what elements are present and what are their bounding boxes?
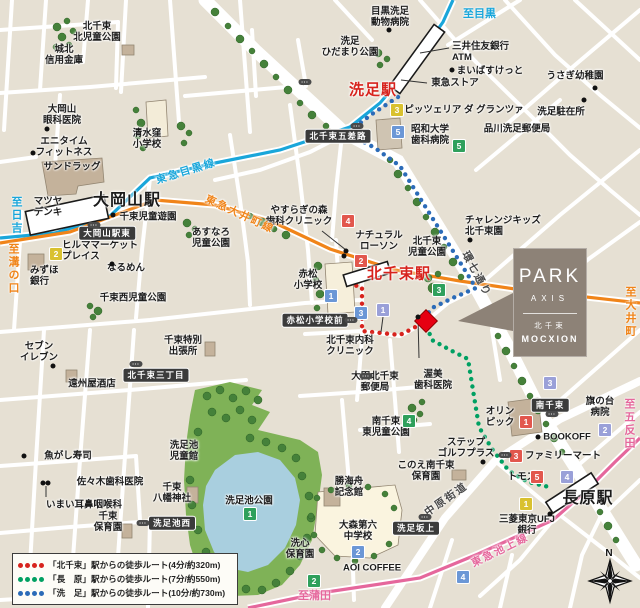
compass-north-label: N [605,548,612,559]
poi-label: ナチュラル ローソン [355,230,403,252]
poi-location-dot [31,151,36,156]
legend-route-label: 「長 原」駅からの徒歩ルート(7分/約550m) [48,573,220,585]
poi-label: オリン ピック [486,406,515,428]
poi-label: 洗足池公園 [225,495,273,506]
poi-location-dot [593,86,598,91]
poi-label: 魚がし寿司 [44,450,92,461]
legend-dot [32,591,37,596]
area-access-map: 北千束 北児童公園城北 信用金庫大岡山 眼科医院エニタイム フィットネスサンドラ… [0,0,640,608]
poi-label: BOOKOFF [543,431,591,442]
poi-location-dot [111,213,116,218]
numbered-poi-badge: 2 [598,423,612,437]
rail-road-name-label: 東急目黒線 [154,155,218,188]
direction-label: 至日吉 [8,196,24,235]
poi-label: チャレンジキッズ 北千束園 [465,215,541,237]
station-name-label: 大岡山駅 [93,186,161,210]
legend-dot [18,577,23,582]
legend-dot [32,563,37,568]
legend-dot [18,591,23,596]
poi-location-dot [582,98,587,103]
station-name-label: 長原駅 [562,484,613,508]
legend-dot [32,577,37,582]
numbered-poi-badge: 4 [341,214,355,228]
numbered-poi-badge: 5 [452,139,466,153]
poi-location-dot [387,28,392,33]
poi-label: 洗足 ひだまり公園 [322,36,379,58]
poi-label: 千束特別 出張所 [164,335,202,357]
bus-stop-icon: ••• [546,411,559,417]
bus-stop-icon: ••• [137,520,150,526]
poi-label: マツヤ デンキ [34,196,63,218]
numbered-poi-badge: 3 [390,103,404,117]
brand-location: 北千束 [513,320,587,331]
poi-location-dot [51,364,56,369]
poi-label: ヒルママーケット プレイス [62,240,138,262]
poi-label: まいばすけっと [457,65,524,76]
poi-label: 赤松 小学校 [294,269,323,291]
legend-row: 「北千束」駅からの徒歩ルート(4分/約320m) [18,558,232,572]
poi-label: ステップ ゴルフプラス [438,437,495,459]
poi-label: 品川洗足郵便局 [484,123,551,134]
legend-route-label: 「北千束」駅からの徒歩ルート(4分/約320m) [48,559,220,571]
poi-label: セブン イレブン [20,341,58,363]
poi-location-dot [342,254,347,259]
station-name-label: 北千束駅 [367,263,431,284]
numbered-poi-badge: 5 [391,125,405,139]
direction-label: 至大井町 [622,286,638,338]
brand-axis: AXIS [513,294,587,303]
bus-stop-name-badge: 洗足坂上 [393,522,439,535]
legend-row: 「長 原」駅からの徒歩ルート(7分/約550m) [18,572,232,586]
direction-label: 至蒲田 [298,587,331,603]
numbered-poi-badge: 3 [432,283,446,297]
legend-dot [39,591,44,596]
poi-label: あすなろ 児童公園 [192,227,230,249]
route-legend: 「北千束」駅からの徒歩ルート(4分/約320m)「長 原」駅からの徒歩ルート(7… [12,553,238,605]
direction-label: 至五反田 [621,398,637,450]
bus-stop-name-badge: 南千束 [532,399,569,412]
poi-label: 旗の台 病院 [586,396,615,418]
legend-dot [39,563,44,568]
poi-label: ファミリーマート [525,450,601,461]
bus-stop-icon: ••• [130,361,143,367]
poi-label: 渥美 歯科医院 [414,369,452,391]
rail-road-name-label: 東急大井町線 [203,191,277,236]
numbered-poi-badge: 1 [243,507,257,521]
poi-location-dot [46,481,51,486]
poi-label: 清水窪 小学校 [133,128,162,150]
brand-divider [523,313,577,314]
bus-stop-icon: ••• [345,317,358,323]
poi-label: 北千束 児童公園 [408,236,446,258]
legend-row: 「洗 足」駅からの徒歩ルート(10分/約730m) [18,586,232,600]
numbered-poi-badge: 1 [519,415,533,429]
legend-dot [18,563,23,568]
poi-label: 大田北千束 郵便局 [351,371,399,393]
bus-stop-icon: ••• [351,123,364,129]
station-name-label: 洗足駅 [349,79,397,100]
poi-label: みずほ 銀行 [30,265,59,287]
bus-stop-name-badge: 大岡山駅東 [79,227,135,240]
bus-stop-icon: ••• [88,222,101,228]
legend-route-dots [18,591,44,596]
bus-stop-icon: ••• [299,79,312,85]
poi-label: 北千束 北児童公園 [73,21,121,43]
poi-label: サンドラッグ [43,161,100,172]
poi-location-dot [536,435,541,440]
poi-label: 城北 信用金庫 [45,44,83,66]
poi-label: 千束 保育園 [94,511,123,533]
poi-location-dot [22,454,27,459]
legend-route-dots [18,577,44,582]
bus-stop-icon: ••• [419,514,432,520]
legend-dot [25,577,30,582]
bus-stop-name-badge: 赤松小学校前 [282,314,347,327]
poi-label: 大岡山 眼科医院 [43,104,81,126]
brand-name: MOCXION [513,334,587,344]
poi-location-dot [45,127,50,132]
poi-location-dot [416,315,421,320]
poi-label: 遠州屋酒店 [68,378,116,389]
brand-park: PARK [513,266,587,288]
numbered-poi-badge: 4 [456,570,470,584]
property-brand-box: PARK AXIS 北千束 MOCXION [513,248,587,357]
legend-route-dots [18,563,44,568]
numbered-poi-badge: 2 [49,247,63,261]
poi-label: 目黒洗足 動物病院 [371,6,409,28]
poi-location-dot [481,460,486,465]
numbered-poi-badge: 4 [402,414,416,428]
legend-dot [25,591,30,596]
poi-label: AOI COFFEE [343,562,401,573]
poi-location-dot [548,512,553,517]
poi-label: 千束西児童公園 [100,292,167,303]
bus-stop-icon: ••• [499,452,512,458]
poi-label: 三井住友銀行 ATM [452,41,509,63]
numbered-poi-badge: 2 [307,574,321,588]
direction-label: 至目黒 [463,5,496,21]
poi-label: いまい耳鼻咽喉科 [46,499,122,510]
bus-stop-name-badge: 北千束三丁目 [123,369,188,382]
poi-location-dot [450,68,455,73]
poi-label: 千束 八幡神社 [153,482,191,504]
numbered-poi-badge: 1 [324,289,338,303]
poi-location-dot [468,238,473,243]
legend-dot [25,563,30,568]
bus-stop-icon: ••• [360,373,373,379]
poi-label: 洗足池 児童館 [170,440,199,462]
poi-label: ピッツェリア ダ グランツァ [404,104,523,115]
numbered-poi-badge: 2 [351,545,365,559]
direction-label: 至溝の口 [5,243,21,295]
numbered-poi-badge: 5 [530,470,544,484]
rail-road-name-label: 東急池上線 [469,530,532,571]
poi-label: 佐々木歯科医院 [77,476,144,487]
numbered-poi-badge: 2 [354,254,368,268]
poi-label: 洗足駐在所 [537,106,585,117]
bus-stop-name-badge: 洗足池西 [149,517,195,530]
numbered-poi-badge: 3 [543,376,557,390]
legend-dot [39,577,44,582]
numbered-poi-badge: 1 [376,303,390,317]
poi-label: 千束児童遊園 [119,211,176,222]
legend-route-label: 「洗 足」駅からの徒歩ルート(10分/約730m) [48,587,225,599]
bus-stop-name-badge: 北千束五差路 [305,130,370,143]
poi-label: このえ南千束 保育園 [397,460,454,482]
poi-label: うさぎ幼稚園 [546,70,603,81]
numbered-poi-badge: 4 [560,470,574,484]
poi-label: 昭和大学 歯科病院 [411,124,449,146]
numbered-poi-badge: 1 [519,497,533,511]
poi-label: 大森第六 中学校 [339,520,377,542]
poi-label: 洗心 保育園 [286,538,315,560]
rail-road-name-label: 環七通り [459,248,496,299]
poi-label: 北千束内科 クリニック [326,335,374,357]
poi-label: 勝海舟 記念館 [335,476,364,498]
poi-location-dot [110,262,115,267]
poi-label: エニタイム フィットネス [36,136,93,158]
poi-label: 東急ストア [431,77,479,88]
